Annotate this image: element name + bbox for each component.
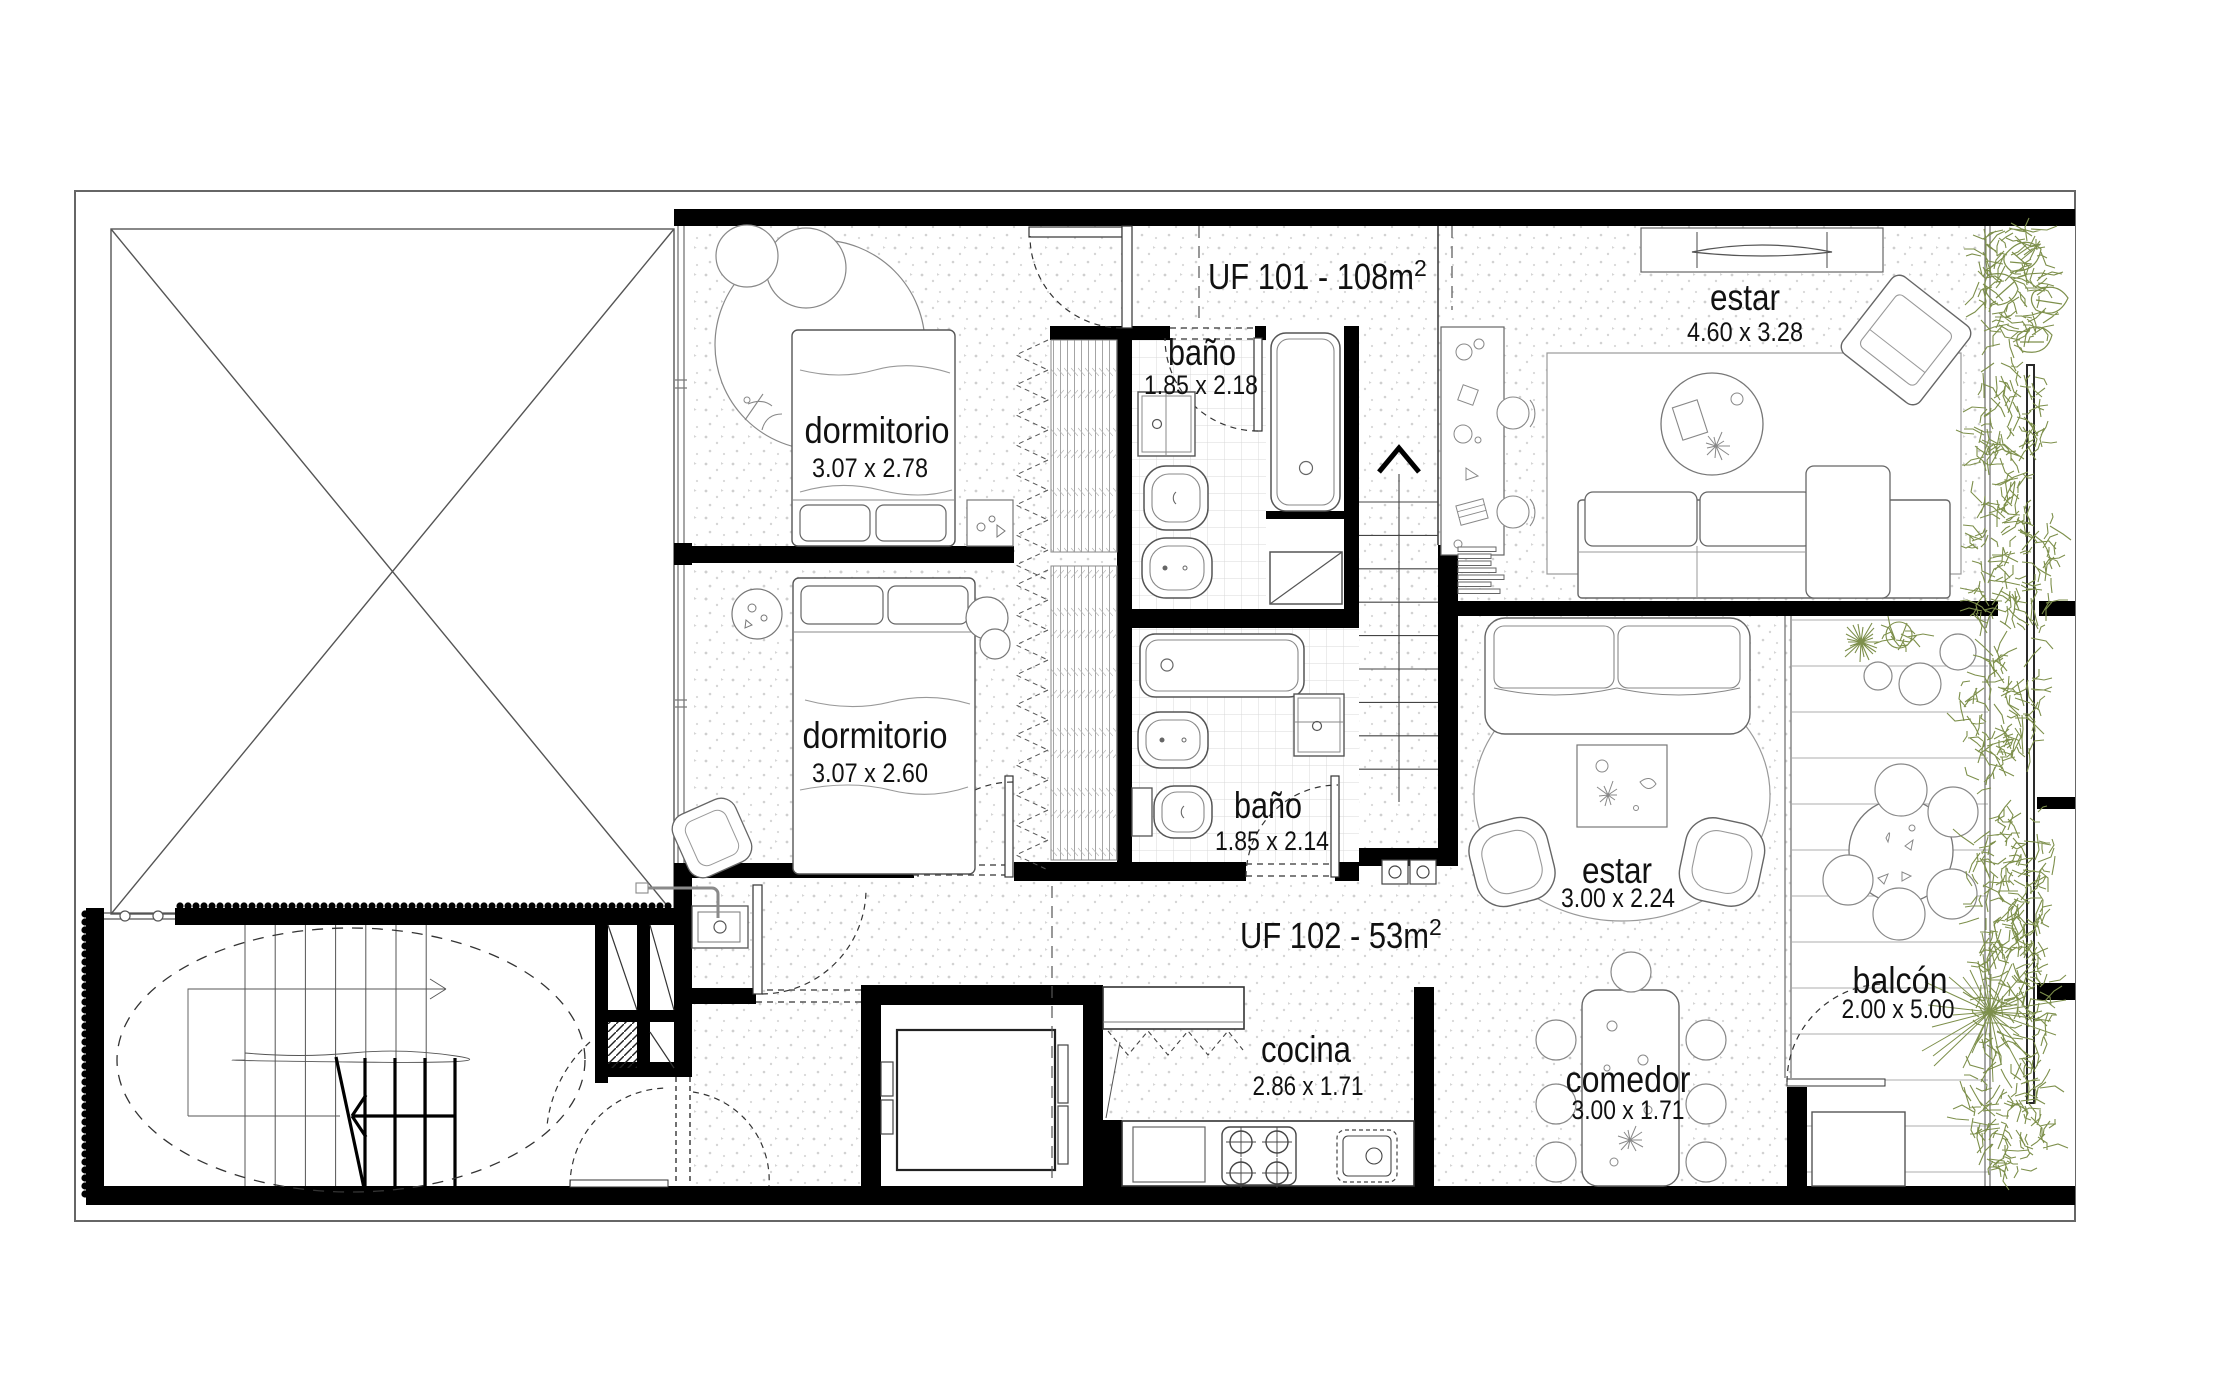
svg-text:4.60 x 3.28: 4.60 x 3.28 — [1687, 317, 1803, 347]
svg-text:dormitorio: dormitorio — [805, 410, 950, 451]
svg-text:1.85 x 2.18: 1.85 x 2.18 — [1144, 370, 1258, 400]
svg-text:3.00 x 1.71: 3.00 x 1.71 — [1572, 1095, 1685, 1125]
svg-text:estar: estar — [1710, 277, 1780, 318]
svg-text:UF 101 - 108m2: UF 101 - 108m2 — [1208, 255, 1427, 297]
svg-text:1.85 x 2.14: 1.85 x 2.14 — [1215, 826, 1329, 856]
svg-text:3.07 x 2.60: 3.07 x 2.60 — [812, 758, 928, 788]
svg-text:baño: baño — [1234, 785, 1302, 826]
svg-text:3.00 x 2.24: 3.00 x 2.24 — [1561, 883, 1675, 913]
svg-text:UF 102 - 53m2: UF 102 - 53m2 — [1240, 914, 1442, 956]
svg-text:comedor: comedor — [1566, 1059, 1691, 1100]
svg-text:3.07 x 2.78: 3.07 x 2.78 — [812, 453, 928, 483]
svg-text:2.00 x 5.00: 2.00 x 5.00 — [1842, 994, 1955, 1024]
svg-text:dormitorio: dormitorio — [803, 715, 948, 756]
svg-text:2.86 x 1.71: 2.86 x 1.71 — [1253, 1071, 1364, 1101]
svg-text:cocina: cocina — [1261, 1029, 1351, 1070]
svg-text:baño: baño — [1168, 332, 1236, 373]
